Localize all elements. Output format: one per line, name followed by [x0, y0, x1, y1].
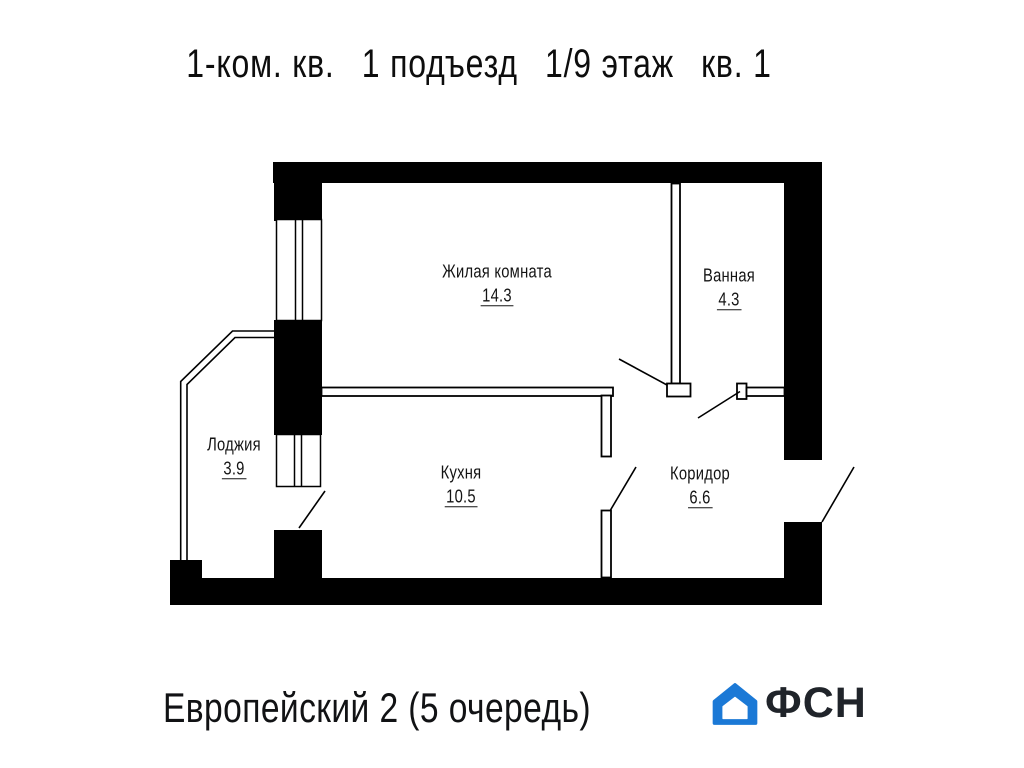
developer-logo: ФСН — [712, 682, 867, 725]
logo-text: ФСН — [765, 682, 867, 725]
room-label-loggia: Лоджия 3.9 — [201, 434, 267, 479]
room-area: 6.6 — [688, 488, 713, 509]
room-area: 4.3 — [717, 290, 742, 311]
room-area: 14.3 — [481, 286, 514, 307]
partition-bathroom-south-endcap — [737, 384, 747, 400]
room-label-kitchen: Кухня 10.5 — [436, 462, 486, 507]
interior-partitions — [322, 184, 785, 578]
room-label-corridor: Коридор 6.6 — [663, 463, 736, 508]
kitchen-door-swing — [611, 467, 637, 510]
room-name: Кухня — [441, 462, 482, 484]
living-room-window — [277, 220, 322, 321]
project-name: Европейский 2 (5 очередь) — [163, 684, 591, 732]
wall-left-low — [274, 530, 322, 580]
wall-top — [273, 162, 822, 183]
partition-kitchen-corridor-lower — [602, 511, 612, 578]
partition-living-bathroom-endcap — [667, 384, 691, 397]
room-name: Коридор — [670, 463, 730, 485]
room-area: 10.5 — [444, 487, 477, 508]
house-icon — [712, 683, 758, 725]
room-name: Жилая комната — [442, 261, 552, 283]
bathroom-door-swing — [698, 392, 740, 419]
wall-bottom — [170, 578, 822, 605]
room-name: Ванная — [703, 265, 755, 287]
window-frame — [277, 435, 321, 487]
loggia-door-swing — [299, 491, 325, 528]
room-label-living: Жилая комната 14.3 — [430, 261, 564, 306]
wall-left-corner — [274, 162, 322, 221]
living-room-door-swing — [619, 359, 667, 385]
wall-right-upper — [784, 162, 822, 460]
wall-left-mid — [274, 320, 322, 435]
kitchen-window — [277, 435, 321, 487]
room-label-bathroom: Ванная 4.3 — [697, 265, 760, 310]
window-frame — [277, 220, 322, 321]
exterior-walls — [170, 162, 822, 605]
partition-living-kitchen — [322, 388, 614, 397]
room-area: 3.9 — [222, 459, 247, 480]
entrance-door-swing — [822, 467, 854, 522]
wall-loggia-pier — [170, 560, 202, 580]
partition-kitchen-corridor-upper — [602, 396, 612, 457]
partition-living-bathroom — [672, 184, 681, 384]
floorplan-drawing — [0, 0, 1024, 768]
floorplan-page: 1-ком. кв. 1 подъезд 1/9 этаж кв. 1 — [0, 0, 1024, 768]
partition-bathroom-south — [747, 388, 785, 397]
door-swings — [299, 359, 854, 528]
room-name: Лоджия — [207, 434, 261, 456]
